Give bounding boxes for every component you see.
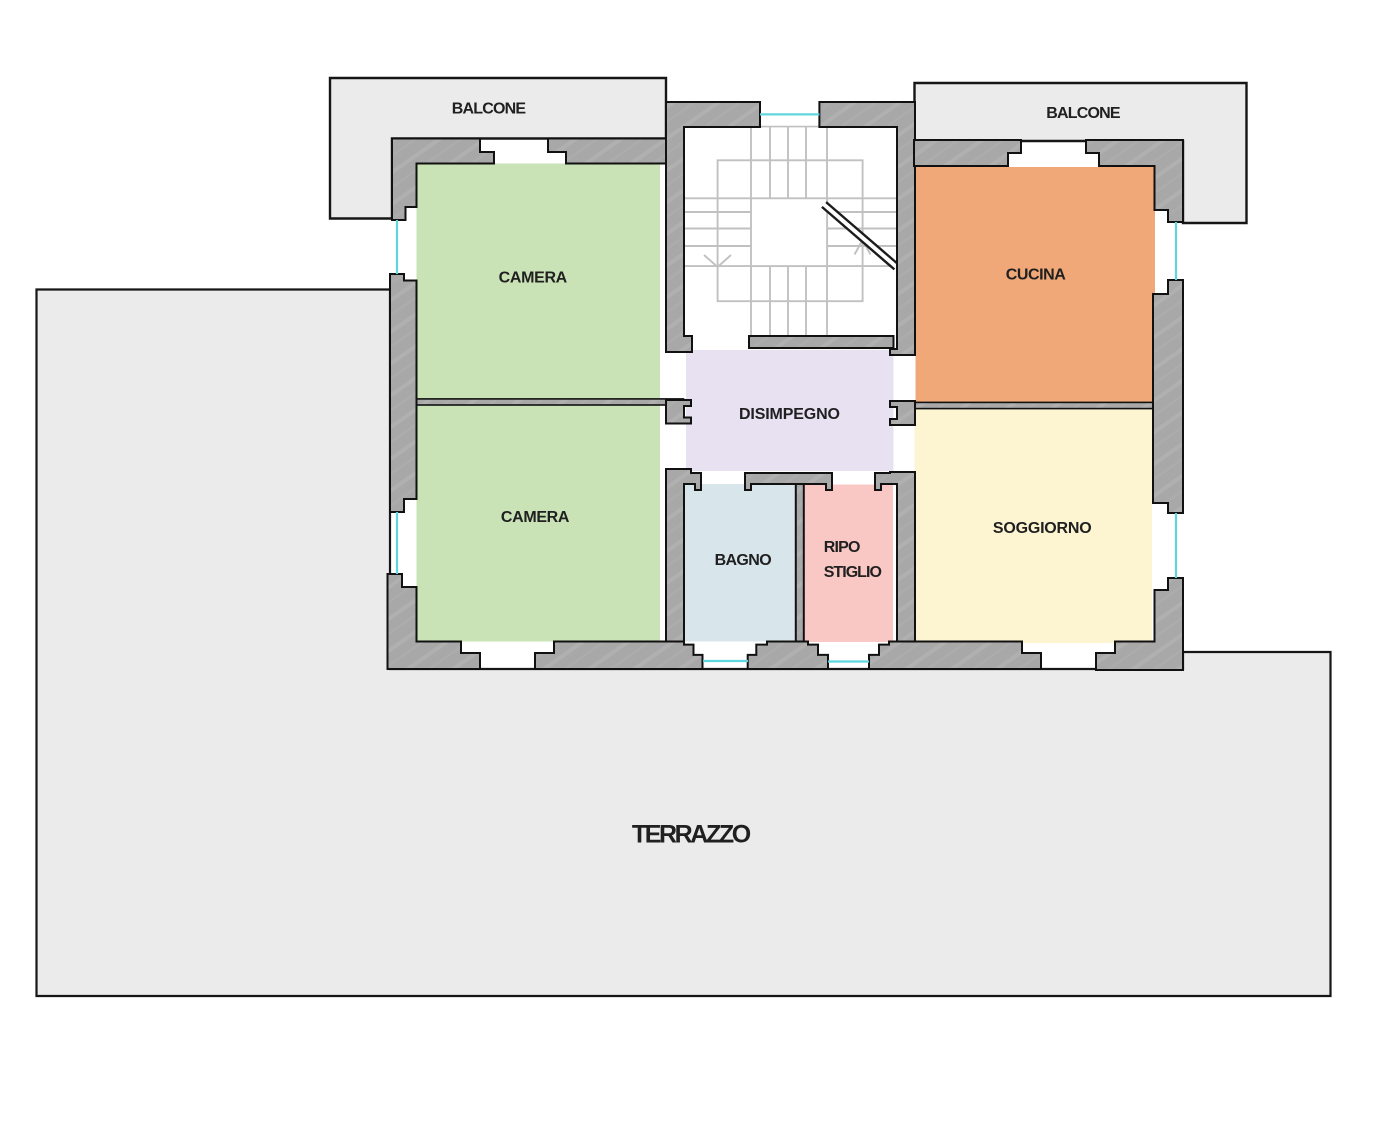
svg-text:BALCONE: BALCONE [452,101,527,118]
svg-text:DISIMPEGNO: DISIMPEGNO [739,406,840,423]
svg-text:STIGLIO: STIGLIO [824,564,882,581]
svg-text:CUCINA: CUCINA [1006,267,1067,284]
svg-text:TERRAZZO: TERRAZZO [632,821,751,849]
svg-text:CAMERA: CAMERA [499,269,568,286]
svg-text:CAMERA: CAMERA [501,509,570,526]
svg-text:BALCONE: BALCONE [1046,105,1121,122]
svg-text:BAGNO: BAGNO [715,552,772,569]
svg-text:RIPO: RIPO [824,539,860,556]
svg-text:SOGGIORNO: SOGGIORNO [993,520,1092,537]
